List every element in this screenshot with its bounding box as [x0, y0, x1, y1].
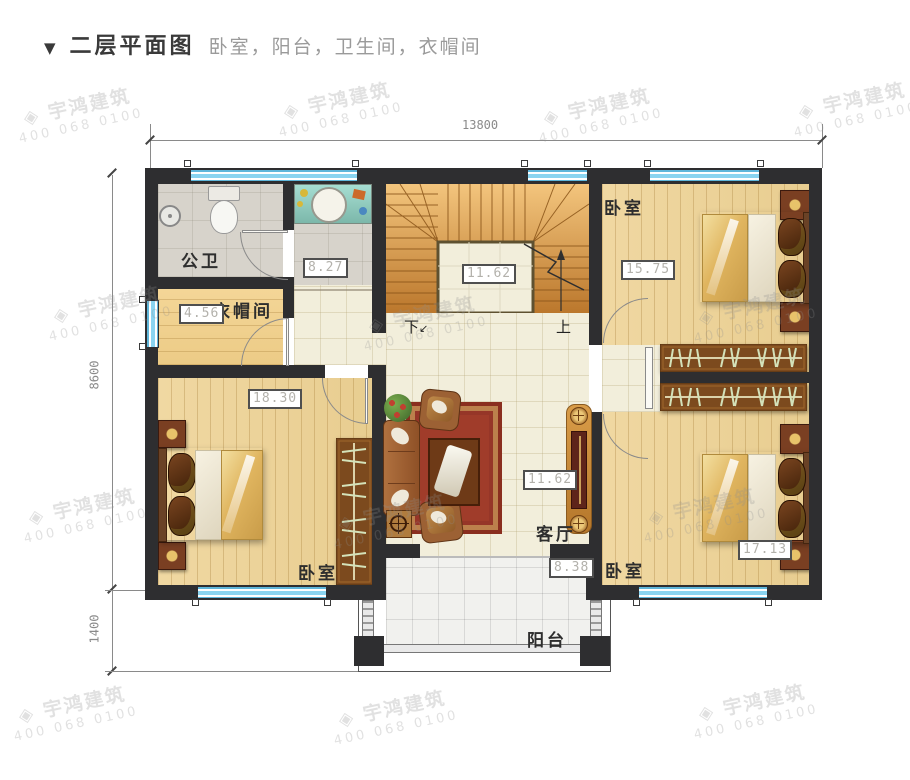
coffee-table-icon — [428, 438, 480, 506]
wardrobe-bottom-right-icon — [660, 383, 807, 411]
wall-living-east-upper — [589, 168, 602, 345]
window-top-3 — [649, 169, 760, 182]
dim-left-upper-value: 8600 — [87, 357, 101, 394]
door-leaf-bathroom — [242, 230, 288, 233]
label-balcony: 阳台 — [527, 626, 567, 651]
stairs-down-label: 下↙ — [404, 316, 428, 337]
watermark: ◈ 宇鸿建筑400 068 0100 — [17, 479, 150, 546]
wall-right — [809, 168, 822, 598]
bed-bottom-right-icon — [700, 452, 812, 542]
area-bedroom-bottom-right: 17.13 — [738, 540, 792, 560]
dim-ext-top-left — [150, 124, 151, 168]
wall-bath-cloak — [145, 277, 294, 289]
wall-stairs-west — [372, 168, 386, 333]
label-living: 客厅 — [536, 520, 576, 545]
side-table-icon — [386, 510, 412, 538]
wardrobe-top-right-icon — [660, 344, 807, 372]
door-leaf-bedroom-left — [365, 378, 368, 424]
area-balcony: 8.38 — [549, 558, 594, 578]
dim-left-lower-value: 1400 — [87, 611, 101, 648]
balcony-post-right — [580, 636, 610, 666]
shower-head-icon — [159, 205, 181, 227]
label-bedroom-top-right: 卧室 — [604, 194, 644, 219]
wall-bedrooms-divider — [660, 372, 809, 383]
dim-line-left-upper — [112, 175, 113, 590]
area-bathroom: 8.27 — [303, 258, 348, 278]
washroom-threshold — [294, 289, 372, 291]
dim-ext-balcony — [105, 671, 358, 672]
wall-cloak-east — [283, 289, 294, 318]
label-bedroom-left: 卧室 — [298, 559, 338, 584]
label-bathroom: 公卫 — [181, 247, 221, 272]
watermark: ◈ 宇鸿建筑400 068 0100 — [787, 73, 910, 140]
toilet-icon — [206, 186, 240, 234]
area-bedroom-left: 18.30 — [248, 389, 302, 409]
armchair-icon — [418, 388, 462, 432]
cabinet-knob-icon — [570, 407, 588, 425]
dim-ext-mid — [105, 590, 150, 591]
wardrobe-left-icon — [336, 438, 373, 585]
sink-icon — [311, 187, 347, 223]
plan-subtitle: 卧室，阳台，卫生间，衣帽间 — [209, 32, 482, 59]
watermark: ◈ 宇鸿建筑400 068 0100 — [7, 677, 140, 744]
watermark: ◈ 宇鸿建筑400 068 0100 — [532, 79, 665, 146]
balcony-threshold — [420, 556, 550, 558]
wall-living-south-a — [372, 544, 420, 558]
watermark: ◈ 宇鸿建筑400 068 0100 — [327, 681, 460, 748]
balcony-post-left — [354, 636, 384, 666]
dim-ext-top-right — [822, 124, 823, 168]
balcony-outline-bottom — [358, 671, 611, 672]
nightstand — [780, 424, 810, 454]
floor-plan-page: ▼ 二层平面图 卧室，阳台，卫生间，衣帽间 13800 8600 1400 — [0, 0, 910, 780]
window-left — [146, 300, 159, 348]
bed-left-icon — [158, 448, 262, 540]
window-top-1 — [190, 169, 358, 182]
watermark: ◈ 宇鸿建筑400 068 0100 — [12, 79, 145, 146]
balcony-outline-right — [610, 600, 611, 672]
area-living: 11.62 — [523, 470, 577, 490]
nightstand — [158, 542, 186, 570]
wall-bedroom-left-top-a — [145, 365, 325, 378]
area-stairwell: 11.62 — [462, 264, 516, 284]
dim-line-left-lower — [112, 590, 113, 672]
plan-title: 二层平面图 — [70, 28, 195, 60]
label-bedroom-bottom-right: 卧室 — [605, 557, 645, 582]
area-bedroom-top-right: 15.75 — [621, 260, 675, 280]
hall-floor-gap — [372, 333, 386, 365]
nightstand — [158, 420, 186, 448]
wall-living-south-b — [550, 544, 602, 558]
vanity-counter — [294, 184, 372, 224]
sofa-icon — [383, 420, 420, 516]
window-bottom-left — [197, 586, 327, 599]
door-leaf-passage — [645, 347, 653, 409]
watermark: ◈ 宇鸿建筑400 068 0100 — [687, 675, 820, 742]
staircase — [386, 184, 589, 313]
nightstand — [780, 302, 810, 332]
stairs-up-label: 上 — [556, 316, 571, 337]
page-title: ▼ 二层平面图 卧室，阳台，卫生间，衣帽间 — [44, 28, 482, 60]
area-cloakroom: 4.56 — [179, 304, 224, 324]
dim-line-top — [150, 140, 822, 141]
window-top-2 — [527, 169, 588, 182]
dim-top-value: 13800 — [458, 118, 502, 132]
door-leaf-cloakroom — [286, 318, 289, 366]
watermark: ◈ 宇鸿建筑400 068 0100 — [272, 73, 405, 140]
plant-icon — [384, 394, 412, 422]
triangle-marker-icon: ▼ — [44, 39, 56, 57]
bed-top-right-icon — [700, 212, 812, 302]
wall-left — [145, 168, 158, 598]
window-bottom-right — [638, 586, 768, 599]
